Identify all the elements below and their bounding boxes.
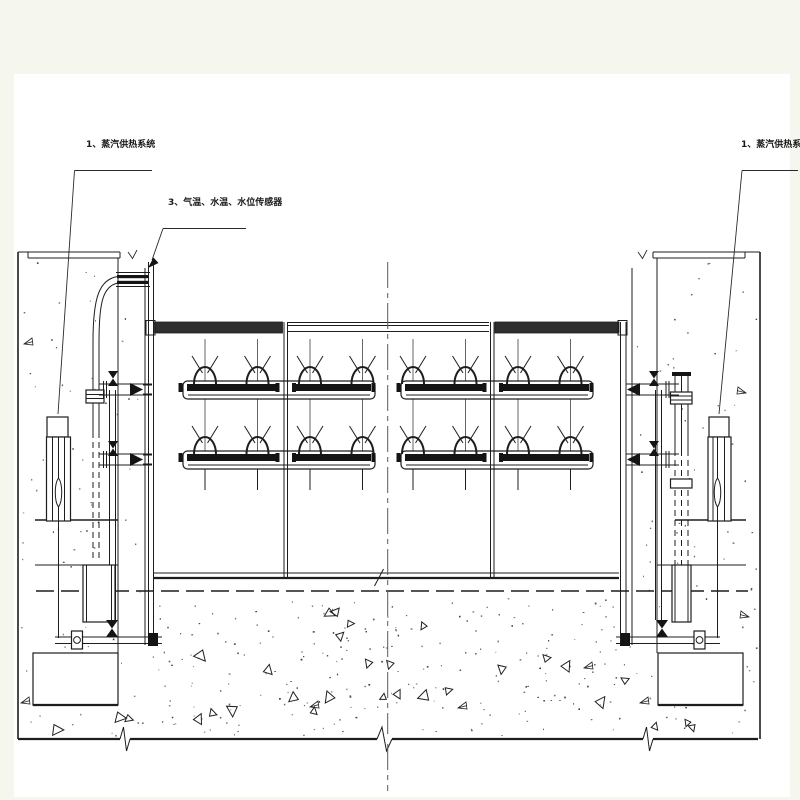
stipple-dot	[80, 531, 81, 532]
stipple-dot	[539, 668, 541, 670]
stipple-dot	[303, 735, 305, 736]
stipple-dot	[519, 714, 520, 715]
gate-top-chord-left	[155, 322, 283, 333]
stipple-dot	[640, 434, 641, 436]
stipple-dot	[756, 319, 757, 320]
stipple-dot	[86, 272, 87, 273]
stipple-dot	[559, 700, 561, 701]
stipple-dot	[159, 606, 160, 607]
stipple-dot	[115, 735, 117, 737]
stipple-dot	[564, 697, 566, 699]
stipple-dot	[422, 646, 423, 648]
stipple-dot	[173, 724, 174, 725]
stipple-dot	[591, 719, 593, 720]
stipple-dot	[406, 615, 407, 616]
stipple-dot	[484, 709, 485, 710]
stipple-dot	[487, 607, 488, 608]
callout-steam-supply-left: 1、蒸汽供热系统	[86, 139, 155, 151]
stipple-dot	[199, 623, 201, 624]
stipple-dot	[673, 358, 674, 360]
pipe-elbow-cap	[672, 372, 691, 376]
stipple-dot	[745, 480, 746, 482]
stipple-dot	[552, 609, 553, 610]
stipple-dot	[725, 410, 726, 411]
stipple-dot	[344, 628, 346, 629]
stipple-dot	[423, 729, 424, 730]
pipe-end-stub	[499, 383, 503, 392]
stipple-dot	[675, 718, 676, 720]
stipple-dot	[646, 544, 647, 546]
stipple-dot	[70, 566, 72, 567]
stipple-dot	[749, 670, 750, 671]
stipple-dot	[411, 628, 413, 630]
stipple-dot	[526, 686, 527, 688]
stipple-dot	[659, 606, 660, 607]
stipple-dot	[129, 469, 130, 470]
stipple-dot	[63, 562, 65, 563]
stipple-dot	[327, 655, 328, 657]
stipple-dot	[427, 666, 429, 668]
stipple-dot	[26, 670, 27, 672]
stipple-dot	[703, 427, 704, 428]
stipple-dot	[676, 532, 678, 533]
stipple-dot	[674, 707, 675, 708]
stipple-dot	[475, 653, 476, 655]
stipple-dot	[272, 636, 274, 637]
stipple-dot	[137, 399, 138, 400]
stipple-dot	[122, 341, 124, 343]
stipple-dot	[79, 488, 81, 489]
stipple-dot	[584, 678, 585, 679]
stipple-dot	[528, 605, 529, 606]
stipple-dot	[191, 634, 193, 635]
stipple-dot	[56, 347, 57, 348]
stipple-dot	[685, 707, 687, 709]
stipple-dot	[666, 717, 667, 718]
stipple-dot	[615, 649, 616, 650]
stipple-dot	[614, 626, 615, 628]
stipple-dot	[39, 716, 40, 717]
stipple-dot	[514, 617, 516, 618]
stipple-dot	[551, 634, 553, 635]
stipple-dot	[234, 643, 236, 645]
stipple-dot	[225, 641, 226, 643]
stipple-dot	[691, 294, 693, 295]
stipple-dot	[191, 655, 192, 656]
stipple-dot	[134, 696, 136, 697]
cylinder-head	[47, 417, 68, 437]
stipple-dot	[90, 301, 91, 302]
stipple-dot	[442, 707, 443, 709]
stipple-dot	[434, 701, 435, 702]
stipple-dot	[685, 420, 686, 421]
stipple-dot	[581, 624, 582, 625]
stipple-dot	[543, 700, 544, 702]
stipple-dot	[121, 663, 122, 664]
stipple-dot	[337, 674, 338, 676]
stipple-dot	[578, 708, 580, 710]
stipple-dot	[677, 563, 678, 564]
stipple-dot	[736, 350, 738, 351]
stipple-dot	[694, 546, 695, 547]
stipple-dot	[471, 730, 473, 732]
stipple-dot	[210, 729, 211, 730]
heater-pipe	[292, 454, 371, 461]
stipple-dot	[354, 602, 355, 603]
stipple-dot	[290, 681, 292, 682]
stipple-dot	[604, 664, 606, 665]
stipple-dot	[526, 652, 527, 654]
drawing-sheet: 1、蒸汽供热系统 3、气温、水温、水位传感器 1、蒸汽供热系统	[0, 0, 800, 800]
stipple-dot	[314, 643, 315, 644]
stipple-dot	[373, 619, 375, 621]
stipple-dot	[301, 659, 303, 661]
stipple-dot	[85, 627, 86, 628]
stipple-dot	[753, 681, 755, 682]
stipple-dot	[756, 648, 758, 649]
stipple-dot	[229, 704, 231, 706]
stipple-dot	[668, 364, 670, 365]
stipple-dot	[413, 687, 414, 689]
stipple-dot	[652, 521, 653, 523]
stipple-dot	[226, 722, 227, 724]
stipple-dot	[687, 332, 688, 334]
stipple-dot	[23, 512, 24, 513]
stipple-dot	[169, 661, 171, 663]
stipple-dot	[396, 630, 397, 631]
stipple-dot	[481, 723, 482, 724]
stipple-dot	[398, 635, 399, 637]
stipple-dot	[685, 525, 686, 527]
stipple-dot	[496, 675, 497, 676]
sensor-conduit-bracket	[117, 275, 148, 278]
stipple-dot	[595, 603, 597, 605]
hydraulic-cylinder	[708, 437, 731, 521]
stipple-dot	[244, 654, 245, 656]
stipple-dot	[220, 690, 222, 692]
stipple-dot	[475, 630, 476, 631]
stipple-dot	[112, 733, 113, 734]
recess-box	[83, 565, 115, 622]
stipple-dot	[94, 547, 96, 548]
footing-block	[33, 653, 118, 705]
stipple-dot	[660, 371, 662, 372]
stipple-dot	[548, 640, 549, 642]
stipple-dot	[694, 556, 695, 558]
stipple-dot	[237, 731, 239, 732]
stipple-dot	[481, 615, 482, 616]
pipe-coupling	[671, 479, 693, 488]
stipple-dot	[630, 646, 631, 648]
stipple-dot	[323, 613, 324, 615]
stipple-dot	[319, 701, 320, 703]
pipe-end-stub	[397, 453, 401, 462]
stipple-dot	[171, 665, 173, 666]
stipple-dot	[465, 652, 466, 654]
stipple-dot	[708, 263, 709, 265]
stipple-dot	[408, 684, 409, 685]
stipple-dot	[751, 589, 753, 590]
stipple-dot	[350, 696, 352, 698]
stipple-dot	[340, 647, 342, 648]
stipple-dot	[546, 680, 547, 681]
stipple-dot	[346, 638, 348, 639]
stipple-dot	[153, 656, 154, 658]
callout-sensors: 3、气温、水温、水位传感器	[168, 197, 282, 209]
stipple-dot	[742, 292, 744, 293]
stipple-dot	[594, 664, 596, 665]
stipple-dot	[641, 471, 643, 473]
stipple-dot	[21, 627, 22, 628]
stipple-dot	[727, 531, 729, 533]
pipe-end-stub	[292, 383, 296, 392]
stipple-dot	[260, 643, 261, 644]
stipple-dot	[452, 602, 453, 604]
gate-top-chord-right	[495, 322, 619, 333]
stipple-dot	[600, 704, 601, 705]
stipple-dot	[62, 385, 63, 387]
stipple-dot	[255, 611, 257, 612]
stipple-dot	[329, 677, 331, 678]
stipple-dot	[435, 687, 436, 688]
stipple-dot	[191, 686, 192, 687]
stipple-dot	[636, 673, 637, 674]
stipple-dot	[381, 661, 383, 663]
stipple-dot	[235, 618, 236, 620]
stipple-dot	[175, 723, 177, 724]
stipple-dot	[439, 643, 440, 644]
pipe-end-stub	[179, 383, 183, 392]
stipple-dot	[706, 598, 707, 600]
stipple-dot	[480, 703, 481, 704]
stipple-dot	[397, 671, 398, 672]
stipple-dot	[600, 652, 601, 653]
stipple-dot	[228, 683, 229, 684]
stipple-dot	[734, 405, 735, 406]
stipple-dot	[368, 684, 370, 686]
stipple-dot	[74, 549, 76, 550]
stipple-dot	[304, 705, 305, 706]
stipple-dot	[217, 633, 219, 635]
stipple-dot	[288, 692, 289, 693]
stipple-dot	[64, 647, 66, 648]
stipple-dot	[583, 612, 585, 613]
stipple-dot	[739, 721, 740, 722]
stipple-dot	[22, 559, 23, 560]
callout-steam-supply-right: 1、蒸汽供热系统	[741, 139, 800, 151]
stipple-dot	[292, 601, 293, 602]
sill-connector	[148, 633, 158, 646]
stipple-dot	[733, 542, 735, 544]
footing-block	[658, 653, 743, 705]
stipple-dot	[257, 625, 259, 626]
stipple-dot	[192, 683, 193, 684]
heater-pipe	[187, 384, 279, 391]
stipple-dot	[94, 276, 95, 277]
stipple-dot	[637, 346, 638, 347]
stipple-dot	[709, 263, 710, 264]
stipple-dot	[128, 398, 129, 400]
stipple-dot	[684, 728, 685, 729]
stipple-dot	[30, 722, 32, 723]
stipple-dot	[624, 664, 625, 665]
stipple-dot	[125, 318, 126, 320]
pipe-end-stub	[590, 383, 594, 392]
stipple-dot	[714, 353, 716, 354]
stipple-dot	[23, 542, 24, 544]
stipple-dot	[395, 629, 397, 630]
stipple-dot	[72, 448, 74, 450]
stipple-dot	[332, 609, 333, 610]
stipple-dot	[164, 652, 165, 654]
stipple-dot	[303, 656, 304, 657]
cylinder-head	[709, 417, 729, 437]
stipple-dot	[313, 631, 315, 632]
stipple-dot	[220, 717, 222, 719]
stipple-dot	[619, 718, 620, 720]
stipple-dot	[574, 639, 575, 640]
stipple-dot	[443, 688, 445, 690]
pipe-end-stub	[179, 453, 183, 462]
stipple-dot	[365, 628, 367, 630]
stipple-dot	[383, 647, 384, 648]
stipple-dot	[587, 686, 589, 688]
stipple-dot	[694, 469, 695, 471]
stipple-dot	[234, 734, 235, 735]
stipple-dot	[613, 606, 614, 608]
stipple-dot	[498, 641, 499, 643]
stipple-dot	[43, 459, 44, 460]
stipple-dot	[230, 709, 231, 710]
stipple-dot	[292, 714, 293, 715]
pipe-end-stub	[483, 453, 487, 462]
stipple-dot	[600, 606, 602, 607]
stipple-dot	[643, 576, 644, 578]
stipple-dot	[502, 735, 503, 736]
stipple-dot	[391, 693, 392, 694]
pipe-end-stub	[483, 383, 487, 392]
stipple-dot	[718, 405, 720, 406]
stipple-dot	[160, 618, 161, 620]
stipple-dot	[51, 339, 53, 341]
stipple-dot	[459, 616, 461, 618]
sensor-conduit-bracket	[117, 281, 148, 284]
stipple-dot	[480, 649, 481, 650]
stipple-dot	[80, 714, 81, 716]
stipple-dot	[91, 505, 92, 506]
stipple-dot	[752, 532, 754, 533]
stipple-dot	[339, 719, 340, 721]
stipple-dot	[423, 669, 424, 670]
stipple-dot	[395, 627, 396, 628]
stipple-dot	[747, 666, 748, 668]
stipple-dot	[59, 302, 60, 303]
stipple-dot	[674, 319, 676, 321]
stipple-dot	[499, 614, 500, 615]
stipple-dot	[527, 721, 529, 722]
stipple-dot	[331, 691, 332, 692]
heater-pipe	[405, 454, 486, 461]
stipple-dot	[322, 653, 323, 654]
stipple-dot	[172, 717, 174, 718]
stipple-dot	[95, 320, 96, 321]
stipple-dot	[238, 725, 240, 726]
stipple-dot	[460, 670, 462, 672]
stipple-dot	[473, 611, 475, 612]
stipple-dot	[742, 627, 744, 629]
stipple-dot	[35, 386, 36, 387]
stipple-dot	[356, 717, 358, 718]
stipple-dot	[520, 659, 522, 660]
stipple-dot	[436, 731, 438, 732]
stipple-dot	[489, 715, 491, 716]
pipe-coupling	[671, 392, 693, 404]
stipple-dot	[754, 609, 756, 610]
pipe-end-stub	[372, 383, 376, 392]
stipple-dot	[307, 702, 309, 703]
stipple-dot	[651, 676, 652, 677]
stipple-dot	[732, 443, 734, 445]
stipple-dot	[466, 620, 468, 621]
stipple-dot	[334, 724, 335, 725]
stipple-dot	[527, 686, 529, 687]
stipple-dot	[537, 697, 539, 698]
stipple-dot	[125, 520, 127, 521]
stipple-dot	[30, 373, 32, 374]
pipe-end-stub	[276, 383, 280, 392]
stipple-dot	[182, 659, 183, 660]
heater-pipe	[499, 384, 589, 391]
stipple-dot	[525, 711, 526, 712]
stipple-dot	[610, 640, 611, 641]
stipple-dot	[554, 695, 556, 697]
stipple-dot	[579, 683, 580, 684]
stipple-dot	[369, 648, 371, 650]
stipple-dot	[346, 689, 347, 691]
stipple-dot	[610, 702, 612, 703]
stipple-dot	[350, 707, 351, 708]
heater-pipe	[405, 384, 486, 391]
stipple-dot	[86, 530, 88, 532]
stipple-dot	[279, 698, 281, 700]
stipple-dot	[165, 686, 166, 687]
stipple-dot	[53, 531, 54, 533]
stipple-dot	[391, 646, 393, 647]
stipple-dot	[573, 703, 574, 705]
stipple-dot	[416, 684, 418, 685]
stipple-dot	[82, 459, 83, 460]
stipple-dot	[297, 687, 298, 689]
stipple-dot	[314, 729, 315, 730]
stipple-dot	[605, 600, 607, 601]
stipple-dot	[342, 658, 343, 660]
stipple-dot	[346, 650, 347, 651]
stipple-dot	[90, 502, 92, 503]
stipple-dot	[194, 707, 195, 708]
stipple-dot	[204, 732, 205, 733]
stipple-dot	[284, 704, 285, 706]
stipple-dot	[441, 665, 442, 666]
stipple-dot	[138, 722, 140, 723]
stipple-dot	[37, 262, 39, 264]
stipple-dot	[551, 700, 553, 701]
stipple-dot	[105, 403, 107, 405]
stipple-dot	[512, 625, 513, 627]
stipple-dot	[545, 673, 546, 674]
stipple-dot	[723, 559, 725, 560]
stipple-dot	[158, 669, 159, 670]
stipple-dot	[31, 479, 32, 481]
